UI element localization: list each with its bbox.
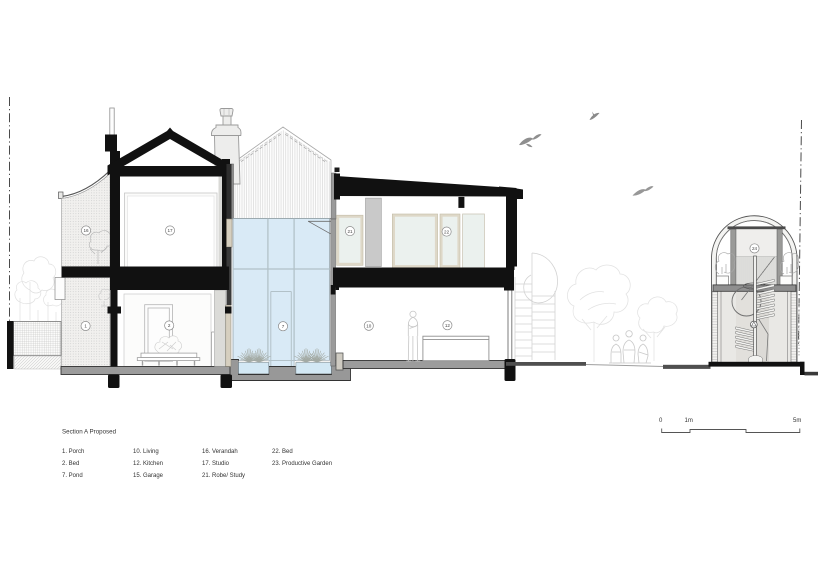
svg-text:10. Living: 10. Living: [133, 449, 159, 455]
svg-text:7: 7: [282, 324, 285, 329]
svg-text:5m: 5m: [793, 418, 801, 424]
svg-text:2. Bed: 2. Bed: [62, 461, 79, 467]
svg-text:2: 2: [168, 323, 171, 328]
svg-text:21: 21: [347, 229, 353, 234]
svg-text:12. Kitchen: 12. Kitchen: [133, 461, 163, 467]
svg-text:1m: 1m: [685, 418, 693, 424]
svg-text:23. Productive Garden: 23. Productive Garden: [272, 461, 332, 467]
svg-text:12: 12: [445, 323, 451, 328]
svg-text:15. Garage: 15. Garage: [133, 473, 164, 479]
svg-text:10: 10: [366, 324, 372, 329]
svg-text:1. Porch: 1. Porch: [62, 449, 84, 455]
svg-text:17. Studio: 17. Studio: [202, 461, 230, 467]
svg-text:Section A Proposed: Section A Proposed: [62, 429, 117, 436]
svg-text:16: 16: [83, 228, 89, 233]
svg-text:16. Verandah: 16. Verandah: [202, 449, 238, 455]
svg-text:7. Pond: 7. Pond: [62, 473, 83, 479]
svg-text:17: 17: [167, 228, 173, 233]
svg-text:21. Robe/ Study: 21. Robe/ Study: [202, 473, 245, 479]
svg-text:24: 24: [752, 246, 758, 251]
svg-text:22: 22: [444, 229, 450, 234]
svg-text:1: 1: [84, 324, 87, 329]
svg-text:22. Bed: 22. Bed: [272, 449, 293, 455]
